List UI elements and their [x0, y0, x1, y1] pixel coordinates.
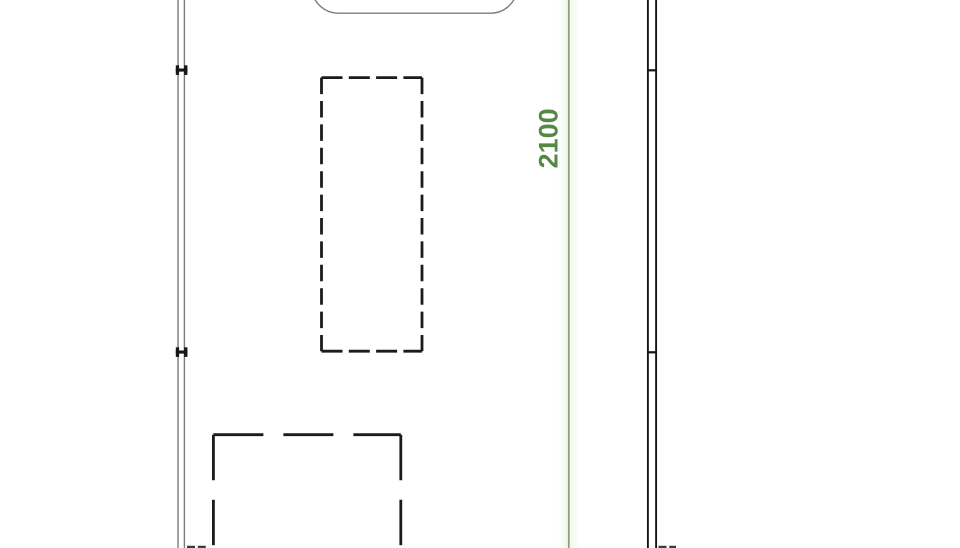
svg-text:2100: 2100 — [534, 108, 564, 168]
